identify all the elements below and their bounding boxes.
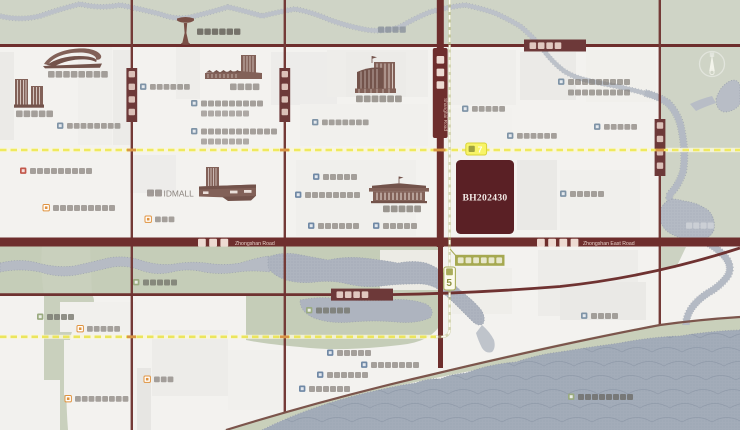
- svg-text:Zhongshan Road: Zhongshan Road: [235, 241, 275, 247]
- svg-text:Zhongshan East Road: Zhongshan East Road: [583, 241, 635, 247]
- svg-text:5: 5: [446, 278, 452, 289]
- svg-text:7: 7: [478, 145, 483, 155]
- svg-text:IDMALL: IDMALL: [164, 188, 195, 198]
- svg-text:BH202430: BH202430: [462, 193, 507, 204]
- svg-text:Shanghai Road: Shanghai Road: [442, 98, 448, 131]
